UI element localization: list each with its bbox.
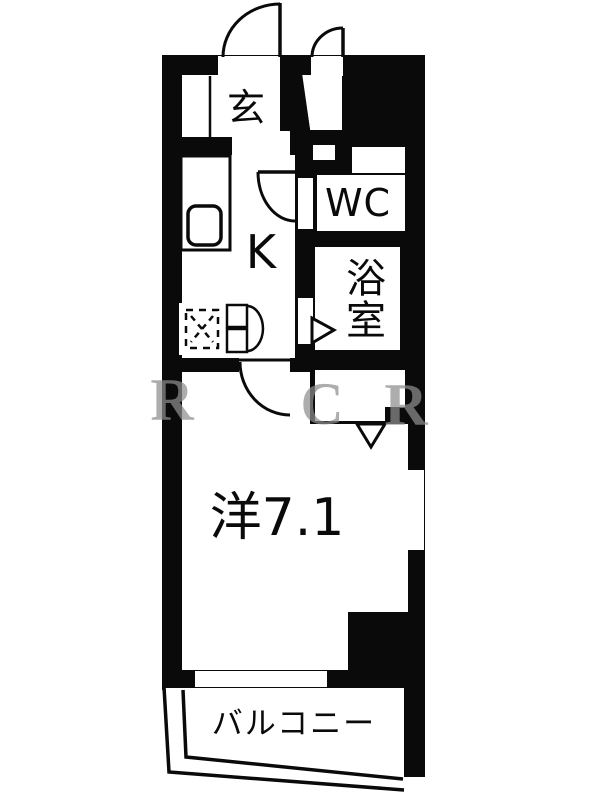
service-door-arc [312, 28, 343, 57]
entrance-door-opening [218, 56, 280, 76]
wc-upper [352, 147, 405, 173]
main-room-label: 洋7.1 [210, 488, 345, 548]
watermark-char-2: C [300, 371, 343, 437]
kitchen-sink-icon [188, 206, 221, 245]
genkan-label: 玄 [227, 86, 265, 130]
wc-nook [313, 145, 335, 160]
floorplan-drawing: 玄 K WC 浴 室 洋7.1 バルコニー R C R [0, 0, 600, 800]
bath-label-char1: 浴 [346, 256, 386, 302]
watermark-char-3: R [384, 372, 428, 438]
genkan-kitchen-passage [232, 131, 290, 159]
watermark-char-1: R [150, 367, 194, 433]
balcony-label: バルコニー [212, 706, 376, 742]
window-balcony [195, 671, 327, 687]
entrance-door-arc [223, 4, 280, 57]
bifold-leaf-top [227, 305, 247, 327]
wc-label: WC [325, 181, 391, 225]
floorplan-page: 玄 K WC 浴 室 洋7.1 バルコニー R C R [0, 0, 600, 800]
window-right [408, 470, 424, 550]
wall-notch [348, 612, 408, 670]
bifold-leaf-bottom [227, 329, 247, 352]
wc-door-opening [298, 178, 313, 229]
kitchen-label: K [246, 225, 278, 279]
service-door-opening [311, 56, 343, 76]
bath-label-char2: 室 [346, 298, 386, 344]
